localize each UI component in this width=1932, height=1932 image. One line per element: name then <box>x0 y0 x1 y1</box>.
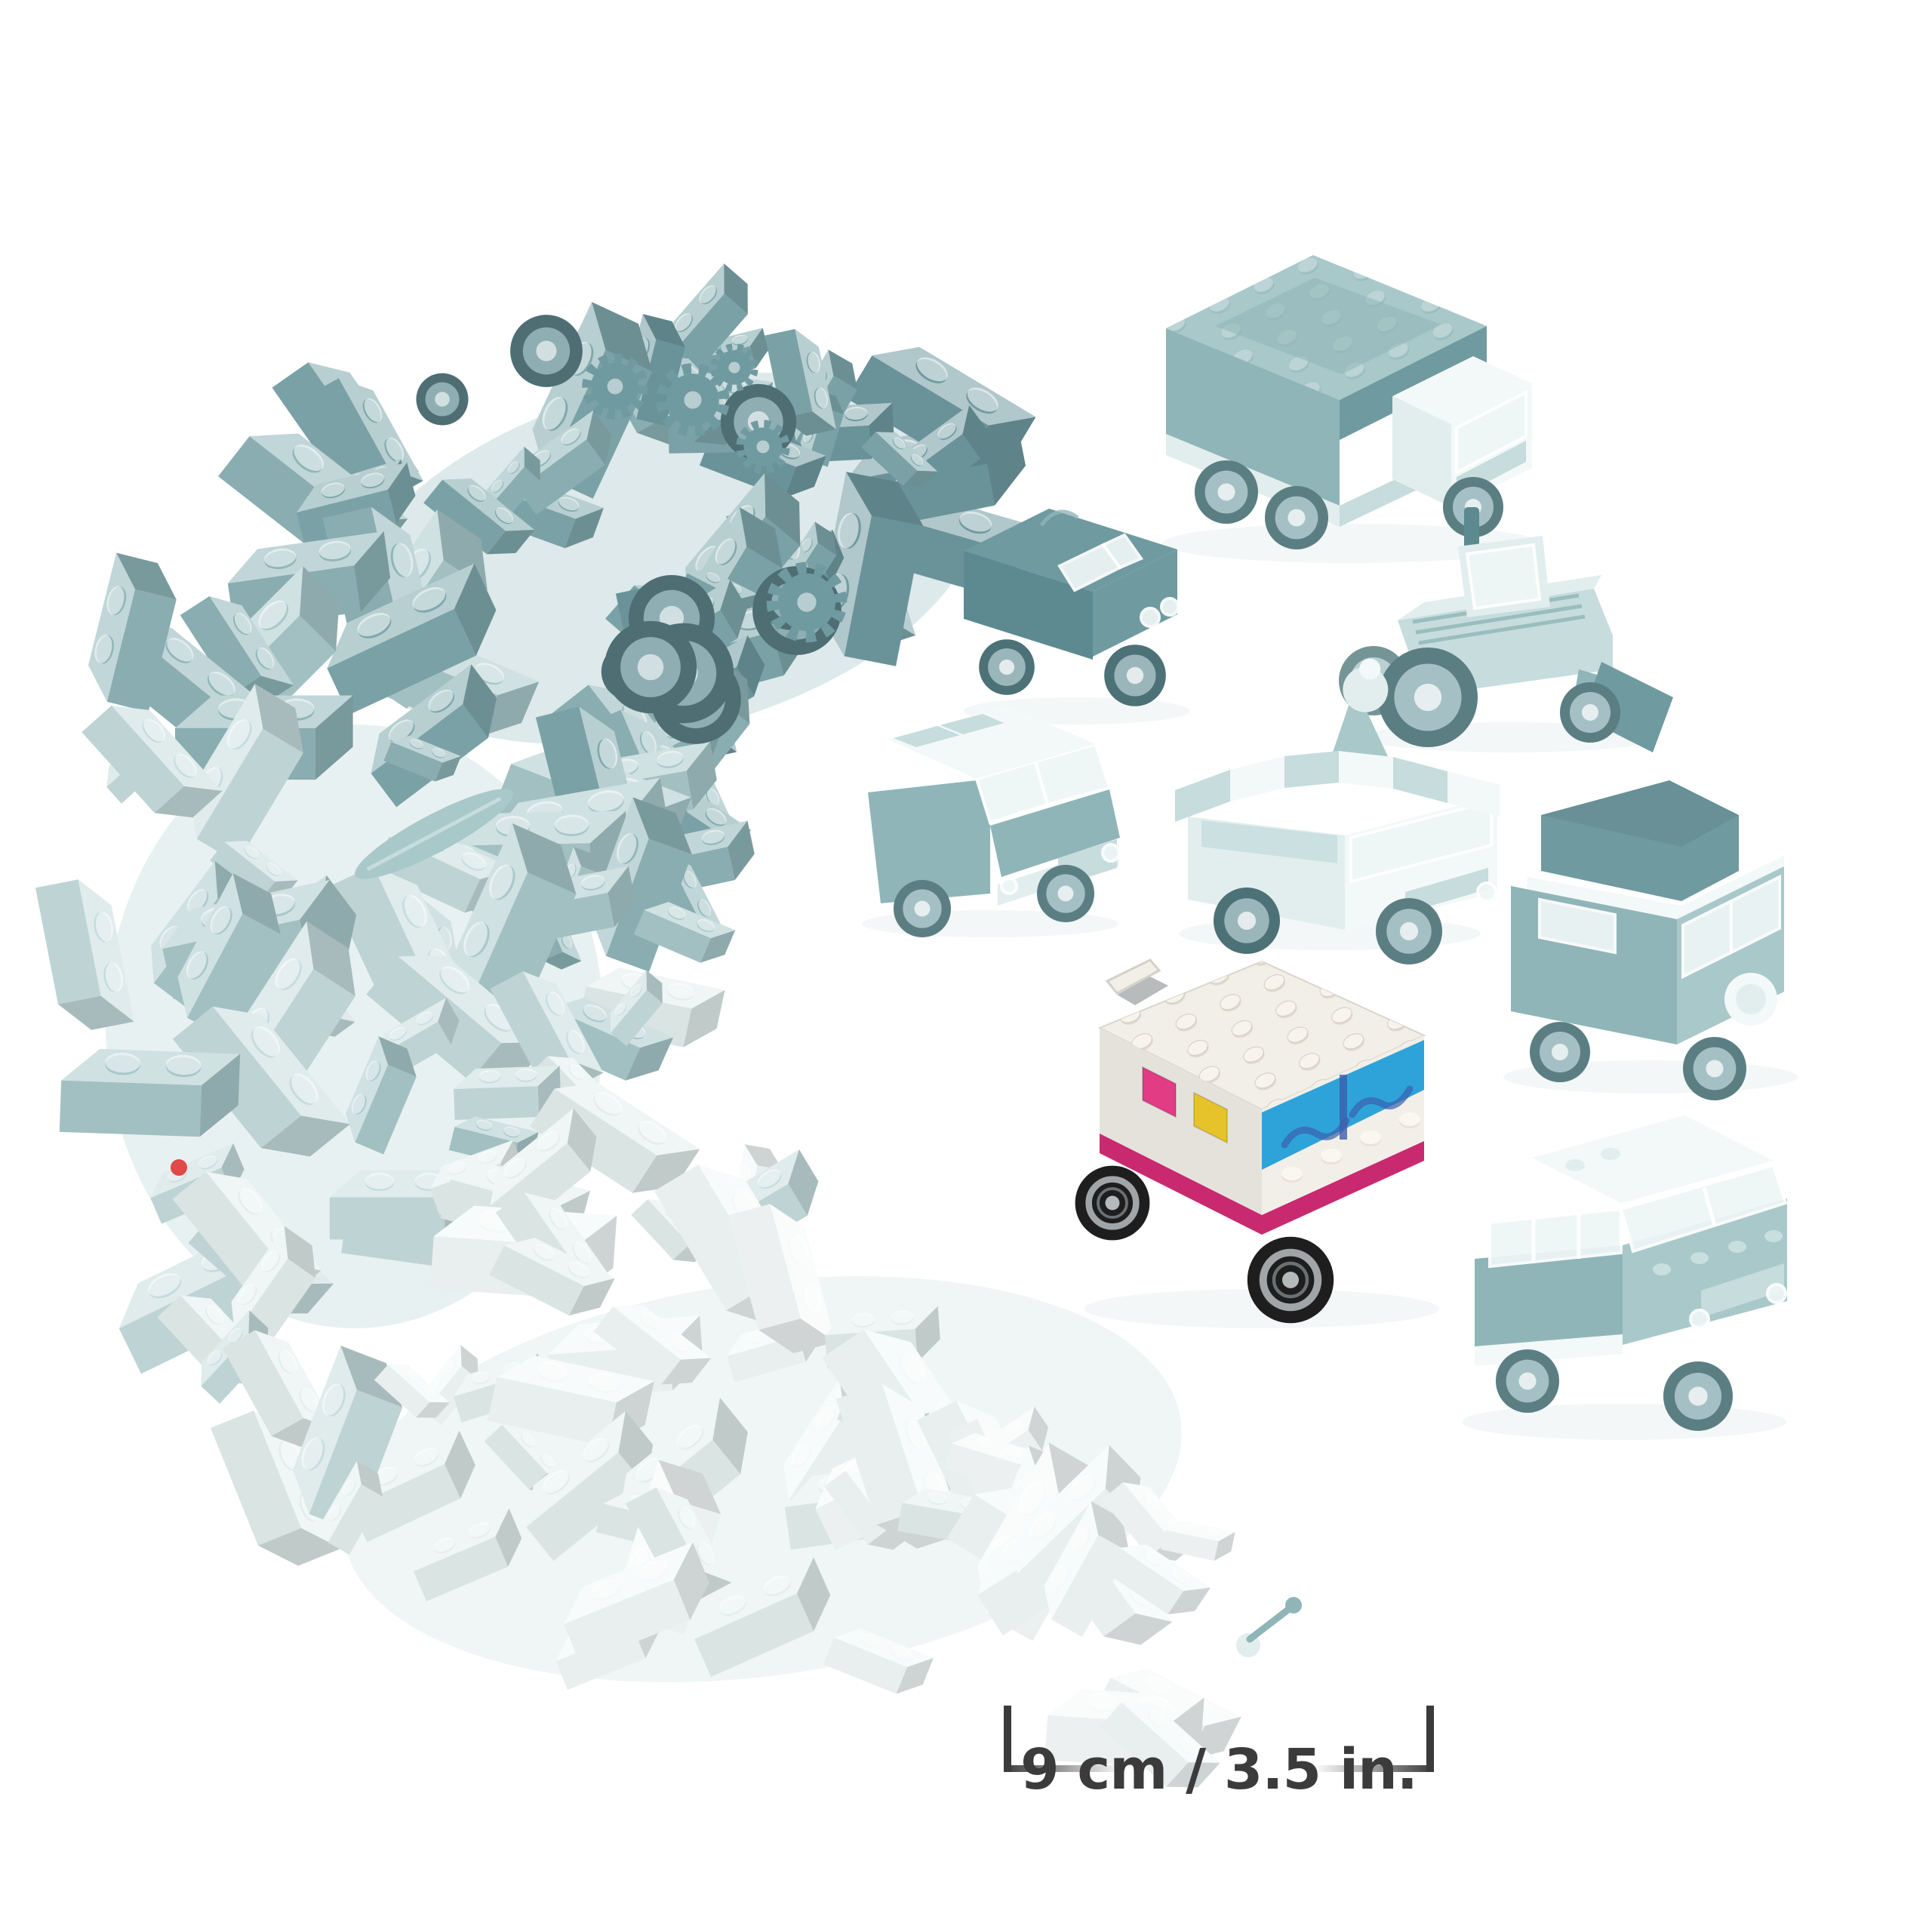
lego-scene <box>0 0 1932 1932</box>
tire <box>406 363 478 435</box>
model-creative-van-highlighted <box>1075 960 1439 1328</box>
wheel <box>1265 486 1328 549</box>
black-wheel <box>1075 1166 1150 1241</box>
headlight <box>1103 844 1119 861</box>
wheel <box>894 880 951 937</box>
model-camper-van <box>1503 780 1798 1100</box>
model-suv-white-roof <box>862 706 1120 937</box>
wheel <box>1683 1037 1746 1100</box>
headlight <box>1690 1310 1709 1328</box>
model-station-wagon <box>1462 1115 1787 1440</box>
wheel <box>979 639 1035 695</box>
bracket-right-icon <box>1313 1706 1434 1778</box>
brick <box>60 1048 240 1138</box>
wheel <box>1037 865 1094 922</box>
brick <box>35 874 134 1035</box>
wheel <box>1663 1361 1733 1431</box>
model-box-truck <box>1162 255 1540 563</box>
front-wheel <box>1560 682 1620 743</box>
red-piece <box>171 1159 187 1176</box>
product-image: 9 cm / 3.5 in. <box>0 0 1932 1932</box>
antenna-piece <box>1236 1597 1302 1657</box>
headlight <box>1478 883 1496 901</box>
wheel <box>1104 645 1166 706</box>
rear-wheel <box>1378 648 1478 747</box>
model-roadster-pickup <box>964 509 1190 724</box>
wheel <box>1214 888 1280 954</box>
wheel <box>1530 1022 1590 1082</box>
wheel <box>1496 1349 1559 1413</box>
cab-window <box>1467 545 1540 608</box>
black-wheel <box>1247 1237 1334 1323</box>
wheel <box>1195 460 1258 524</box>
headlight <box>1141 608 1159 626</box>
size-annotation: 9 cm / 3.5 in. <box>1004 1689 1434 1778</box>
brick-pile <box>35 263 1241 1803</box>
gear <box>657 364 729 436</box>
wheel <box>1376 898 1442 964</box>
